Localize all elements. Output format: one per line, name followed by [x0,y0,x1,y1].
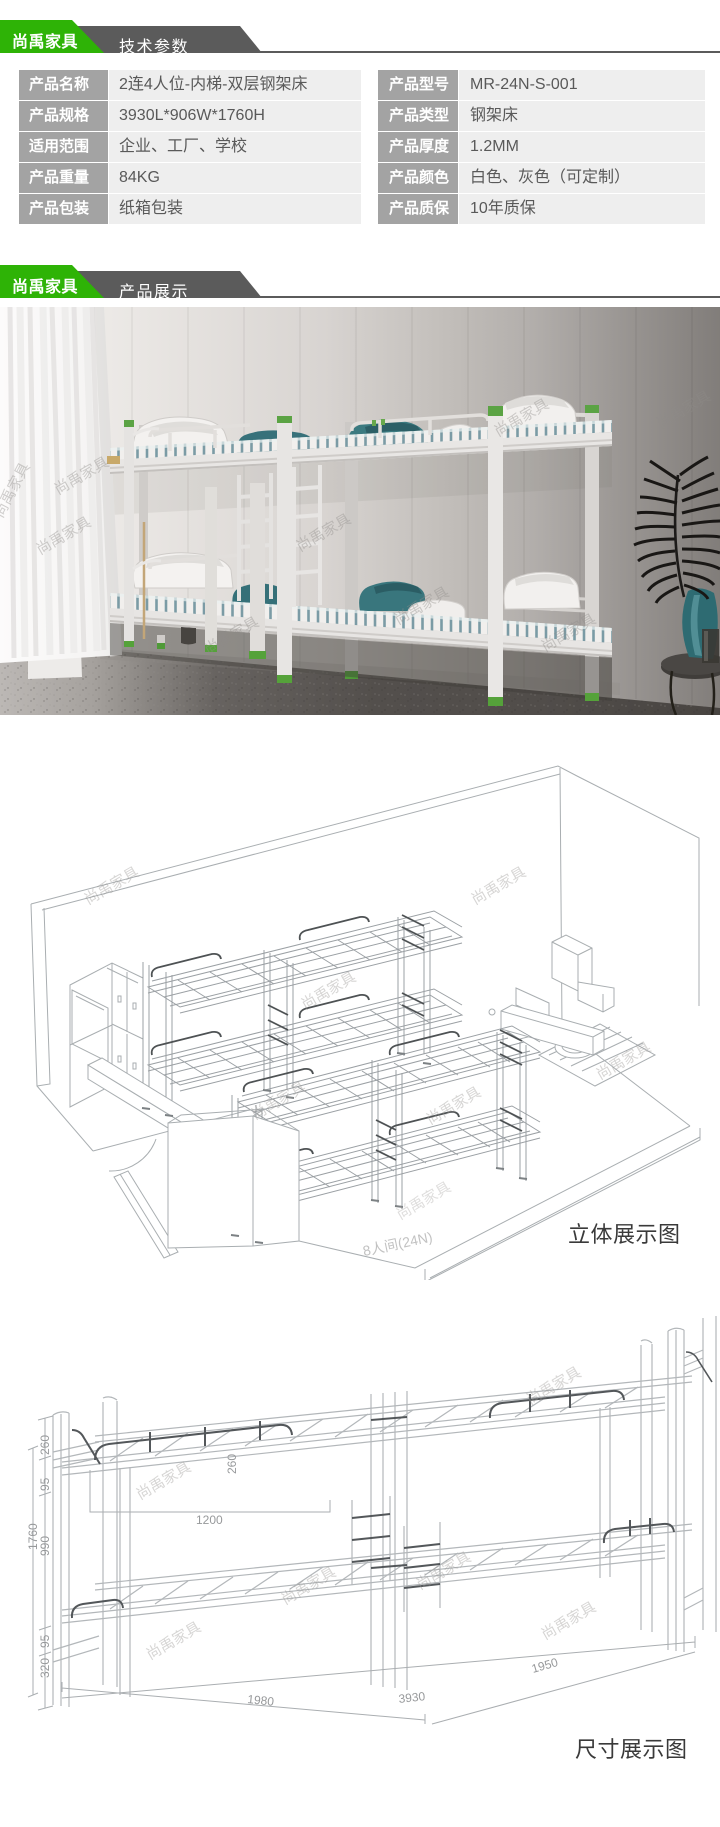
svg-text:260: 260 [38,1435,52,1455]
svg-text:尚禹家具: 尚禹家具 [144,1619,204,1664]
svg-text:8人间(24N): 8人间(24N) [361,1229,434,1259]
svg-text:1980: 1980 [247,1692,275,1709]
svg-text:95: 95 [38,1634,52,1648]
svg-text:95: 95 [38,1477,52,1491]
svg-text:尚禹家具: 尚禹家具 [524,1364,584,1409]
svg-text:尚禹家具: 尚禹家具 [539,1599,599,1644]
svg-text:990: 990 [38,1536,52,1556]
svg-text:260: 260 [225,1454,239,1474]
svg-text:1200: 1200 [196,1513,223,1527]
svg-text:1950: 1950 [530,1655,560,1676]
svg-text:尚禹家具: 尚禹家具 [394,1179,454,1224]
svg-text:尚禹家具: 尚禹家具 [134,1459,194,1504]
svg-text:1760: 1760 [26,1523,40,1550]
svg-text:320: 320 [38,1658,52,1678]
svg-text:尚禹家具: 尚禹家具 [469,864,529,909]
svg-text:3930: 3930 [398,1689,426,1706]
